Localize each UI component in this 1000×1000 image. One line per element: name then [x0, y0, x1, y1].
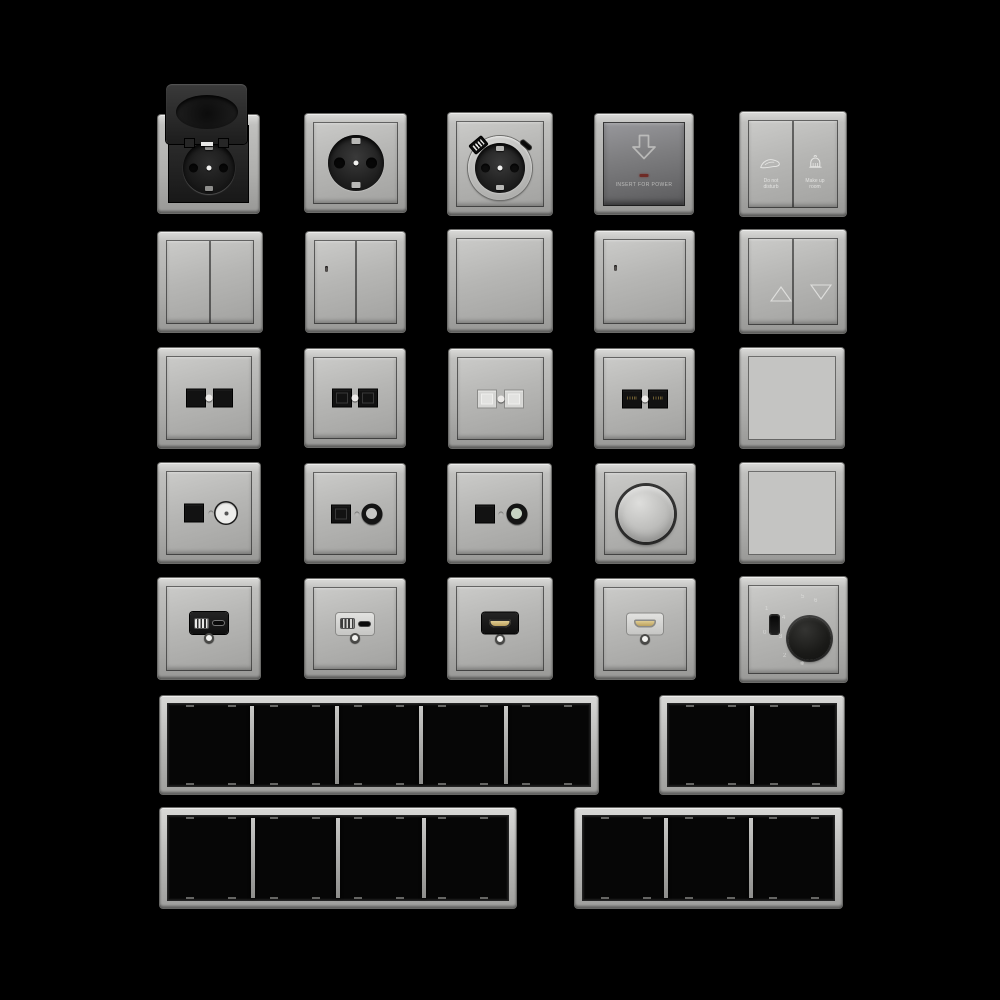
gang-divider: [419, 706, 423, 784]
tv-combo-outlet-tile: [305, 464, 405, 563]
usb-charger-outlet-light-tile: [305, 579, 405, 678]
blank-face: [748, 356, 836, 440]
usb-c-port: [213, 621, 224, 625]
mur-label: Make uproom: [793, 178, 837, 190]
gang-divider: [750, 706, 754, 784]
tv-combo-outlet-tile: [158, 463, 260, 563]
rj45-port-left: [333, 390, 351, 407]
usb-a-port: [341, 619, 354, 628]
thermostat-power-slider: [770, 615, 779, 634]
double-rocker-switch-tile: [158, 232, 262, 332]
dnd-label: Do notdisturb: [749, 178, 793, 190]
frame-cavity: [667, 703, 837, 787]
hdmi-port: [489, 619, 511, 627]
rj45-gold-outlet-tile: [595, 349, 694, 448]
tv-combo-outlet-tile: [448, 464, 551, 563]
hdmi-outlet-light-tile: [595, 579, 695, 679]
status-led: [640, 174, 649, 177]
frame-cavity: [167, 703, 591, 787]
thermostat-knob: [788, 617, 831, 660]
rocker-pair: Do notdisturb Make uproom: [748, 120, 838, 208]
outlet-plate: [603, 587, 687, 671]
dimmer-knob: [618, 486, 674, 542]
card-arrow-down-icon: [630, 134, 658, 160]
dial-mark-5: 5: [801, 594, 804, 600]
rocker: [603, 239, 686, 324]
make-up-room-bell-icon: [807, 155, 824, 172]
blank-rocker-plate-tile: [740, 348, 844, 448]
coax-connector: [361, 503, 382, 524]
socket-hole-right: [219, 163, 228, 172]
slider-off-label: 0: [763, 630, 766, 636]
coax-connector: [216, 503, 237, 524]
shuttered-port-left: [478, 390, 496, 407]
blinds-up-triangle-icon: [769, 285, 793, 303]
socket-clip-bottom: [205, 186, 213, 191]
socket-lidded-tile: [158, 115, 259, 213]
single-rocker-switch-tile: [448, 230, 552, 332]
outlet-plate: [313, 472, 397, 555]
gang-divider: [664, 818, 668, 898]
frost-protection-icon: ❄: [800, 661, 804, 667]
outlet-plate: [603, 357, 686, 440]
center-dot: [499, 511, 504, 516]
socket-clip-bottom: [496, 185, 504, 190]
data-port-left: [187, 390, 205, 407]
gang-divider: [335, 706, 339, 784]
rocker: [456, 238, 544, 324]
hotel-service-switch-tile: Do notdisturb Make uproom: [740, 112, 846, 216]
rj45-port-left: [623, 390, 641, 407]
hdmi-port: [634, 620, 656, 628]
data-port-right: [214, 390, 232, 407]
screw: [495, 634, 505, 644]
rocker-divider: [792, 121, 794, 207]
hdmi-module: [482, 613, 518, 634]
outlet-plate: [313, 357, 397, 439]
schuko-socket: [328, 135, 384, 191]
shuttered-data-outlet-tile: [449, 349, 552, 448]
screw: [640, 634, 650, 644]
center-screw: [206, 395, 213, 402]
screw: [204, 633, 214, 643]
data-port: [476, 505, 494, 522]
do-not-disturb-hand-icon: [759, 157, 781, 172]
outlet-plate: [313, 587, 397, 670]
lid-hinge-left: [185, 139, 194, 147]
card-switch-label: INSERT FOR POWER: [603, 182, 685, 188]
socket-hole-left: [481, 164, 490, 173]
socket-hinged-lid-open: [166, 84, 247, 144]
screw: [350, 633, 360, 643]
dial-mark-3: 3: [779, 634, 782, 640]
lid-hinge-right: [219, 139, 228, 147]
gang-divider: [336, 818, 340, 898]
outlet-plate: [456, 586, 544, 671]
rocker-pair: [314, 240, 397, 324]
rocker-pair: [166, 240, 254, 324]
gang-divider: [749, 818, 753, 898]
frame-cavity: [582, 815, 835, 901]
center-dot: [354, 511, 359, 516]
indicator-led: [614, 265, 617, 271]
key-card-face: INSERT FOR POWER: [603, 122, 685, 206]
lid-latch: [201, 142, 213, 146]
outlet-plate: [166, 356, 252, 440]
socket-plate: [313, 122, 398, 204]
center-screw: [352, 395, 359, 402]
double-rocker-indicator-switch-tile: [306, 232, 405, 332]
data-port: [332, 505, 350, 522]
rocker-divider: [355, 241, 357, 323]
center-screw: [497, 395, 504, 402]
frame-3gang: [575, 808, 842, 908]
socket-hole-right: [366, 158, 377, 169]
blank-face: [748, 471, 836, 555]
center-screw: [641, 395, 648, 402]
socket-hole-right: [510, 164, 519, 173]
dial-mark-2: 2: [783, 653, 786, 659]
schuko-socket: [475, 143, 525, 193]
lid-recess: [176, 95, 238, 129]
rotary-dimmer-tile: [596, 464, 695, 563]
socket-pin: [498, 166, 503, 171]
usb-module: [190, 612, 228, 634]
gang-divider: [250, 706, 254, 784]
single-rocker-indicator-switch-tile: [595, 231, 694, 332]
hdmi-outlet-black-tile: [448, 578, 552, 679]
socket-hole-left: [189, 163, 198, 172]
center-dot: [208, 511, 213, 516]
rocker-divider: [792, 239, 794, 324]
frame-2gang: [660, 696, 844, 794]
slider-on-label: 1: [765, 606, 768, 612]
usb-module: [336, 613, 374, 635]
frame-4gang: [160, 808, 516, 908]
gang-divider: [251, 818, 255, 898]
blank-cover-plate-tile: [740, 463, 844, 563]
thermostat-tile: 1 0 5 6 4 3 2 ❄: [740, 577, 847, 682]
schuko-socket-tile: [305, 114, 406, 212]
socket-pin: [353, 161, 358, 166]
indicator-led: [325, 266, 328, 272]
socket-plate: [456, 121, 544, 207]
coax-connector: [506, 503, 527, 524]
socket-clip-top: [496, 146, 504, 151]
usb-a-port: [195, 619, 208, 628]
rj45-outlet-2port-tile: [305, 349, 405, 447]
blinds-down-triangle-icon: [809, 283, 833, 301]
data-outlet-2port-tile: [158, 348, 260, 448]
rocker-pair: [748, 238, 838, 325]
usb-charger-outlet-black-tile: [158, 578, 260, 679]
rj45-port-right: [359, 390, 377, 407]
outlet-plate: [456, 472, 543, 555]
usb-c-port: [359, 622, 370, 626]
outlet-plate: [166, 471, 252, 555]
outlet-plate: [457, 357, 544, 440]
hdmi-module: [627, 613, 663, 634]
socket-clip-top: [351, 138, 360, 144]
dial-mark-6: 6: [814, 598, 817, 604]
rocker-divider: [209, 241, 211, 323]
data-port: [185, 505, 203, 522]
shuttered-port-right: [505, 390, 523, 407]
schuko-usb-socket-tile: [448, 113, 552, 215]
key-card-switch-tile: INSERT FOR POWER: [595, 114, 693, 214]
blinds-switch-tile: [740, 230, 846, 333]
socket-hole-left: [334, 158, 345, 169]
dimmer-plate: [604, 472, 687, 555]
dial-mark-4: 4: [782, 615, 785, 621]
frame-cavity: [167, 815, 509, 901]
gang-divider: [504, 706, 508, 784]
thermostat-plate: 1 0 5 6 4 3 2 ❄: [748, 585, 839, 674]
schuko-socket: [183, 142, 235, 194]
socket-pin: [206, 165, 211, 170]
rj45-port-right: [649, 390, 667, 407]
frame-5gang: [160, 696, 598, 794]
outlet-plate: [166, 586, 252, 671]
socket-clip-bottom: [351, 182, 360, 188]
gang-divider: [422, 818, 426, 898]
product-render-sheet: INSERT FOR POWER Do notdisturb Make upro…: [0, 0, 1000, 1000]
